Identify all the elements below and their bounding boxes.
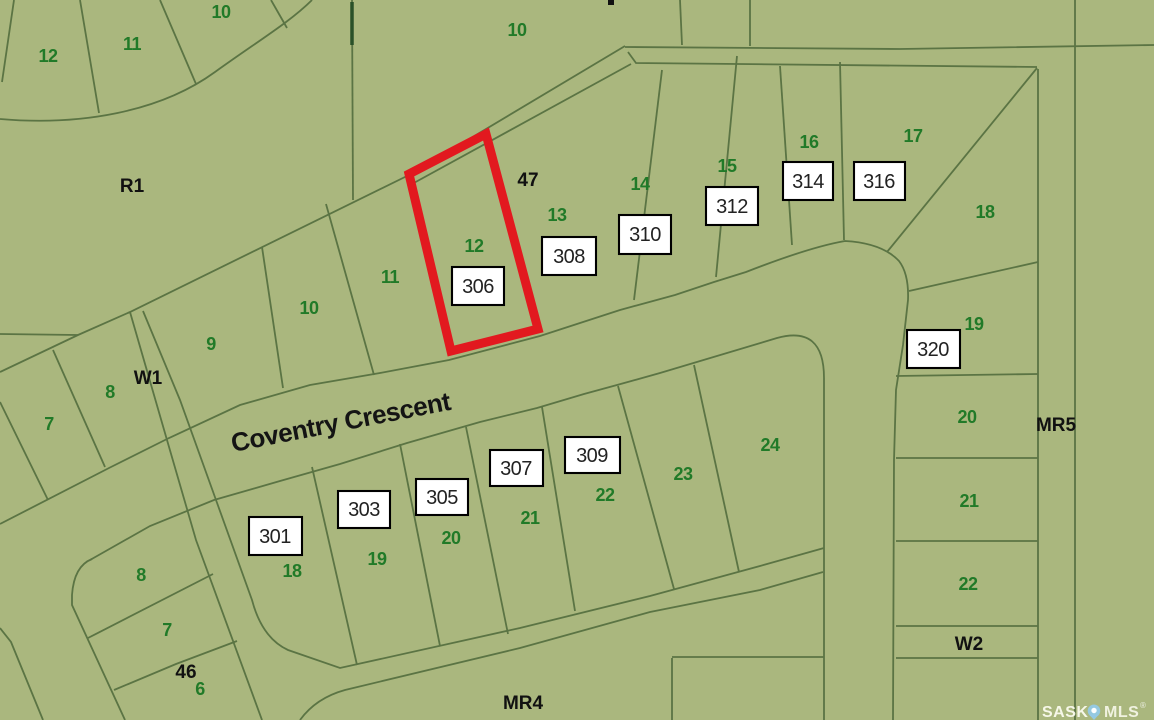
svg-text:W2: W2 (955, 634, 984, 655)
svg-text:17: 17 (903, 126, 923, 146)
svg-text:310: 310 (629, 224, 661, 246)
svg-text:312: 312 (716, 196, 748, 218)
svg-text:47: 47 (517, 170, 538, 191)
svg-text:9: 9 (206, 334, 216, 354)
svg-text:10: 10 (211, 2, 231, 22)
svg-text:20: 20 (441, 528, 461, 548)
svg-text:314: 314 (792, 171, 824, 193)
svg-text:SASK: SASK (1042, 704, 1088, 720)
svg-text:18: 18 (975, 202, 995, 222)
svg-text:7: 7 (44, 414, 54, 434)
svg-text:W1: W1 (134, 368, 163, 389)
svg-text:24: 24 (760, 435, 780, 455)
svg-text:306: 306 (462, 276, 494, 298)
svg-text:20: 20 (957, 407, 977, 427)
svg-text:®: ® (1140, 701, 1146, 710)
svg-text:R1: R1 (120, 176, 145, 197)
svg-text:16: 16 (799, 132, 819, 152)
svg-text:22: 22 (958, 574, 978, 594)
svg-text:MR5: MR5 (1036, 415, 1077, 436)
svg-text:13: 13 (547, 205, 567, 225)
svg-text:21: 21 (520, 508, 540, 528)
svg-text:6: 6 (195, 679, 205, 699)
svg-text:8: 8 (105, 382, 115, 402)
svg-text:303: 303 (348, 499, 380, 521)
svg-text:308: 308 (553, 246, 585, 268)
svg-text:307: 307 (500, 458, 532, 480)
svg-text:10: 10 (507, 20, 527, 40)
svg-text:301: 301 (259, 526, 291, 548)
svg-text:11: 11 (123, 34, 142, 54)
svg-text:320: 320 (917, 339, 949, 361)
svg-text:MLS: MLS (1104, 704, 1139, 720)
svg-text:MR4: MR4 (503, 693, 544, 714)
svg-text:18: 18 (282, 561, 302, 581)
svg-text:21: 21 (959, 491, 979, 511)
svg-text:7: 7 (162, 620, 172, 640)
svg-text:46: 46 (175, 662, 196, 683)
svg-text:11: 11 (381, 267, 400, 287)
svg-text:23: 23 (673, 464, 693, 484)
svg-text:8: 8 (136, 565, 146, 585)
svg-text:12: 12 (38, 46, 58, 66)
svg-text:10: 10 (299, 298, 319, 318)
svg-text:15: 15 (717, 156, 737, 176)
svg-text:305: 305 (426, 487, 458, 509)
svg-text:316: 316 (863, 171, 895, 193)
svg-text:14: 14 (630, 174, 650, 194)
svg-text:19: 19 (964, 314, 984, 334)
svg-text:309: 309 (576, 445, 608, 467)
svg-text:12: 12 (464, 236, 484, 256)
svg-text:22: 22 (595, 485, 615, 505)
svg-text:19: 19 (367, 549, 387, 569)
